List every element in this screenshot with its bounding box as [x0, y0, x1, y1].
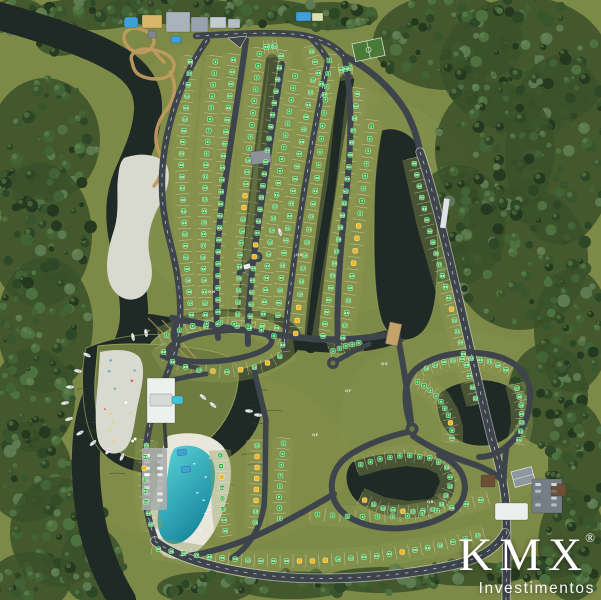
lot-marker[interactable]: 3	[279, 462, 284, 467]
lot-marker[interactable]: 25	[349, 556, 354, 561]
lot-marker[interactable]: 6	[442, 406, 447, 411]
lot-marker[interactable]: 22	[236, 300, 241, 305]
lot-marker[interactable]: 42	[287, 214, 292, 219]
lot-marker[interactable]: 32	[218, 201, 223, 206]
lot-marker[interactable]: 24	[322, 92, 327, 97]
lot-marker[interactable]: 21	[202, 289, 207, 294]
lot-marker[interactable]: 19	[504, 367, 509, 372]
lot-marker[interactable]: 2	[422, 383, 427, 388]
lot-marker[interactable]: 3	[366, 149, 371, 154]
lot-marker[interactable]: 40	[185, 266, 190, 271]
lot-marker[interactable]: 37	[279, 276, 284, 281]
lot-marker[interactable]: 5	[285, 121, 290, 126]
lot-marker[interactable]: 1	[281, 441, 286, 446]
lot-marker[interactable]: 14	[348, 286, 353, 291]
lot-marker[interactable]: 46	[181, 197, 186, 202]
lot-marker[interactable]: 21	[261, 312, 266, 317]
lot-marker[interactable]: 31	[218, 213, 223, 218]
lot-marker[interactable]: 17	[515, 386, 520, 391]
lot-marker[interactable]: 6	[390, 514, 395, 519]
lot-marker[interactable]: 35	[443, 284, 448, 289]
lot-marker[interactable]: 24	[216, 298, 221, 303]
lot-marker[interactable]: 7	[417, 454, 422, 459]
lot-marker[interactable]: 8	[259, 327, 264, 332]
lot-marker[interactable]: 62	[344, 189, 349, 194]
lot-marker[interactable]: 2	[256, 63, 261, 68]
lot-marker[interactable]: 15	[268, 240, 273, 245]
lot-marker[interactable]: 11	[277, 354, 282, 359]
lot-marker[interactable]: 1	[358, 462, 363, 467]
lot-marker[interactable]: 36	[221, 153, 226, 158]
lot-marker[interactable]: 62	[347, 66, 352, 71]
lot-marker[interactable]: 50	[259, 195, 264, 200]
lot-marker[interactable]: 21	[487, 359, 492, 364]
lot-marker[interactable]: 37	[437, 262, 442, 267]
lot-marker[interactable]: 56	[186, 82, 191, 87]
lot-marker[interactable]: 22	[316, 71, 321, 76]
lot-marker[interactable]: 38	[187, 289, 192, 294]
lot-marker[interactable]: 18	[341, 335, 346, 340]
lot-marker[interactable]: 3	[343, 344, 348, 349]
lot-marker[interactable]: 10	[203, 163, 208, 168]
lot-marker[interactable]: 15	[223, 528, 228, 533]
lot-marker[interactable]: 14	[519, 412, 524, 417]
lot-marker[interactable]: 34	[275, 313, 280, 318]
lot-marker[interactable]: 47	[255, 231, 260, 236]
lot-marker[interactable]: 9	[435, 508, 440, 513]
lot-marker[interactable]: 23	[216, 310, 221, 315]
lot-marker[interactable]: 53	[326, 297, 331, 302]
lot-marker[interactable]: 1	[164, 333, 169, 338]
lot-marker[interactable]: 11	[371, 502, 376, 507]
lot-marker[interactable]: 7	[281, 145, 286, 150]
lot-marker[interactable]: 30	[458, 340, 463, 345]
lot-marker[interactable]: 3	[428, 388, 433, 393]
lot-marker[interactable]: 38	[434, 251, 439, 256]
lot-marker[interactable]: 36	[207, 554, 212, 559]
lot-marker[interactable]: 58	[188, 59, 193, 64]
lot-marker[interactable]: 4	[210, 94, 215, 99]
lot-marker[interactable]: 17	[197, 368, 202, 373]
lot-marker[interactable]: 20	[202, 278, 207, 283]
lot-marker[interactable]: 53	[263, 160, 268, 165]
lot-marker[interactable]: 4	[253, 87, 258, 92]
lot-marker[interactable]	[254, 476, 259, 481]
lot-marker[interactable]: 48	[256, 219, 261, 224]
lot-marker[interactable]: 52	[142, 477, 147, 482]
lot-marker[interactable]: 4	[388, 455, 393, 460]
lot-marker[interactable]: 38	[224, 129, 229, 134]
lot-marker[interactable]: 12	[381, 506, 386, 511]
lot-marker[interactable]: 28	[424, 366, 429, 371]
lot-marker[interactable]: 47	[297, 152, 302, 157]
lot-marker[interactable]: 5	[322, 110, 327, 115]
lot-marker[interactable]: 20	[309, 49, 314, 54]
lot-marker[interactable]: 16	[517, 394, 522, 399]
lot-marker[interactable]: 13	[252, 365, 257, 370]
lot-marker[interactable]: 18	[183, 364, 188, 369]
lot-marker[interactable]: 10	[315, 175, 320, 180]
lot-marker[interactable]: 35	[277, 300, 282, 305]
lot-marker[interactable]: 37	[188, 301, 193, 306]
lot-marker[interactable]: 20	[161, 350, 166, 355]
lot-marker[interactable]	[295, 318, 300, 323]
lot-marker[interactable]	[142, 466, 147, 471]
lot-marker[interactable]: 48	[299, 139, 304, 144]
lot-marker[interactable]: 64	[346, 165, 351, 170]
lot-marker[interactable]: 55	[267, 136, 272, 141]
lot-marker[interactable]: 36	[440, 273, 445, 278]
lot-marker[interactable]: 15	[305, 240, 310, 245]
lot-marker[interactable]: 2	[367, 136, 372, 141]
lot-marker[interactable]: 15	[519, 403, 524, 408]
lot-marker[interactable]: 13	[221, 507, 226, 512]
lot-marker[interactable]: 47	[180, 186, 185, 191]
lot-marker[interactable]: 15	[346, 298, 351, 303]
lot-marker[interactable]: 48	[179, 174, 184, 179]
lot-marker[interactable]: 8	[218, 453, 223, 458]
lot-marker[interactable]: 46	[412, 161, 417, 166]
lot-marker[interactable]: 1	[369, 124, 374, 129]
lot-marker[interactable]: 44	[291, 189, 296, 194]
lot-marker[interactable]: 11	[313, 188, 318, 193]
lot-marker[interactable]: 33	[219, 189, 224, 194]
lot-marker[interactable]: 1	[415, 380, 420, 385]
lot-marker[interactable]: 43	[250, 278, 255, 283]
lot-marker[interactable]: 31	[271, 559, 276, 564]
lot-marker[interactable]	[255, 465, 260, 470]
lot-marker[interactable]: 61	[342, 201, 347, 206]
lot-marker[interactable]: 16	[303, 253, 308, 258]
lot-marker[interactable]: 8	[358, 211, 363, 216]
lot-marker[interactable]: 56	[268, 124, 273, 129]
lot-marker[interactable]: 57	[334, 249, 339, 254]
lot-marker[interactable]: 28	[216, 249, 221, 254]
lot-marker[interactable]: 42	[422, 206, 427, 211]
lot-marker[interactable]: 56	[332, 261, 337, 266]
lot-marker[interactable]: 44	[182, 220, 187, 225]
lot-marker[interactable]	[211, 369, 216, 374]
lot-marker[interactable]: 24	[361, 555, 366, 560]
lot-marker[interactable]: 44	[231, 58, 236, 63]
lot-marker[interactable]: 4	[287, 109, 292, 114]
lot-marker[interactable]: 67	[351, 128, 356, 133]
lot-marker[interactable]	[293, 331, 298, 336]
lot-marker[interactable]: 65	[348, 152, 353, 157]
lot-marker[interactable]: 41	[425, 218, 430, 223]
lot-marker[interactable]: 51	[323, 322, 328, 327]
lot-marker[interactable]: 49	[146, 511, 151, 516]
lot-marker[interactable]: 2	[177, 328, 182, 333]
lot-marker[interactable]: 43	[230, 70, 235, 75]
lot-marker[interactable]: 39	[431, 240, 436, 245]
lot-marker[interactable]: 1	[213, 59, 218, 64]
lot-marker[interactable]: 19	[425, 545, 430, 550]
lot-marker[interactable]: 12	[220, 496, 225, 501]
lot-marker[interactable]: 16	[240, 229, 245, 234]
lot-marker[interactable]: 52	[262, 172, 267, 177]
lot-marker[interactable]: 34	[220, 177, 225, 182]
lot-marker[interactable]: 17	[201, 243, 206, 248]
lot-marker[interactable]: 2	[291, 85, 296, 90]
lot-marker[interactable]: 8	[318, 149, 323, 154]
lot-marker[interactable]: 49	[258, 207, 263, 212]
lot-marker[interactable]: 45	[181, 209, 186, 214]
lot-marker[interactable]: 26	[216, 274, 221, 279]
lot-marker[interactable]: 3	[211, 82, 216, 87]
lot-marker[interactable]: 40	[156, 547, 161, 552]
lot-marker[interactable]	[362, 498, 367, 503]
lot-marker[interactable]: 14	[222, 518, 227, 523]
lot-marker[interactable]: 11	[245, 170, 250, 175]
lot-marker[interactable]: 61	[277, 65, 282, 70]
lot-marker[interactable]: 25	[216, 286, 221, 291]
lot-marker[interactable]: 40	[284, 238, 289, 243]
lot-marker[interactable]: 3	[378, 457, 383, 462]
lot-marker[interactable]: 26	[470, 385, 475, 390]
lot-marker[interactable]: 30	[217, 225, 222, 230]
lot-marker[interactable]: 27	[433, 363, 438, 368]
lot-marker[interactable]: 26	[441, 360, 446, 365]
lot-marker[interactable]: 11	[464, 502, 469, 507]
lot-marker[interactable]: 8	[205, 140, 210, 145]
lot-marker[interactable]: 21	[313, 60, 318, 65]
lot-marker[interactable]: 19	[170, 359, 175, 364]
lot-marker[interactable]: 9	[247, 146, 252, 151]
lot-marker[interactable]: 53	[183, 117, 188, 122]
lot-marker[interactable]: 5	[439, 399, 444, 404]
lot-marker[interactable]: 32	[258, 559, 263, 564]
lot-marker[interactable]: 17	[342, 323, 347, 328]
lot-marker[interactable]: 19	[298, 292, 303, 297]
lot-marker[interactable]: 35	[220, 556, 225, 561]
lot-marker[interactable]: 12	[244, 182, 249, 187]
lot-marker[interactable]: 37	[222, 141, 227, 146]
lot-marker[interactable]: 12	[273, 204, 278, 209]
lot-marker[interactable]: 19	[201, 266, 206, 271]
lot-marker[interactable]: 46	[295, 164, 300, 169]
lot-marker[interactable]: 28	[464, 363, 469, 368]
lot-marker[interactable]	[242, 205, 247, 210]
lot-marker[interactable]	[355, 236, 360, 241]
lot-marker[interactable]: 34	[446, 296, 451, 301]
lot-marker[interactable]: 50	[179, 151, 184, 156]
lot-marker[interactable]: 8	[277, 516, 282, 521]
lot-marker[interactable]: 4	[323, 97, 328, 102]
lot-marker[interactable]: 4	[204, 322, 209, 327]
lot-marker[interactable]	[254, 498, 259, 503]
lot-marker[interactable]: 45	[293, 176, 298, 181]
lot-marker[interactable]	[253, 243, 258, 248]
lot-marker[interactable]: 40	[226, 105, 231, 110]
lot-marker[interactable]: 66	[349, 140, 354, 145]
lot-marker[interactable]: 12	[311, 201, 316, 206]
lot-marker[interactable]: 49	[301, 127, 306, 132]
lot-marker[interactable]: 18	[201, 255, 206, 260]
lot-marker[interactable]: 40	[427, 229, 432, 234]
lot-marker[interactable]: 4	[350, 342, 355, 347]
lot-marker[interactable]: 40	[248, 314, 253, 319]
lot-marker[interactable]: 7	[246, 324, 251, 329]
lot-marker[interactable]: 60	[275, 77, 280, 82]
lot-marker[interactable]: 13	[309, 214, 314, 219]
lot-marker[interactable]: 4	[433, 393, 438, 398]
lot-marker[interactable]: 43	[419, 195, 424, 200]
lot-marker[interactable]	[252, 254, 257, 259]
lot-marker[interactable]: 18	[264, 276, 269, 281]
lot-marker[interactable]: 10	[449, 506, 454, 511]
lot-marker[interactable]: 52	[324, 309, 329, 314]
lot-marker[interactable]: 15	[202, 220, 207, 225]
lot-marker[interactable]: 39	[186, 278, 191, 283]
lot-marker[interactable]: 2	[326, 71, 331, 76]
lot-marker[interactable]: 20	[495, 363, 500, 368]
lot-marker[interactable]: 5	[375, 514, 380, 519]
lot-marker[interactable]: 11	[220, 485, 225, 490]
lot-marker[interactable]: 5	[252, 99, 257, 104]
lot-marker[interactable]: 1	[327, 58, 332, 63]
lot-marker[interactable]: 12	[203, 186, 208, 191]
lot-marker[interactable]: 53	[272, 44, 277, 49]
lot-marker[interactable]: 38	[181, 551, 186, 556]
lot-marker[interactable]	[243, 193, 248, 198]
lot-marker[interactable]: 8	[420, 511, 425, 516]
lot-marker[interactable]: 2	[330, 513, 335, 518]
lot-marker[interactable]: 19	[237, 264, 242, 269]
lot-marker[interactable]: 57	[187, 71, 192, 76]
lot-marker[interactable]: 6	[361, 186, 366, 191]
lot-marker[interactable]: 22	[387, 552, 392, 557]
lot-marker[interactable]: 54	[328, 285, 333, 290]
lot-marker[interactable]: 9	[436, 460, 441, 465]
lot-marker[interactable]: 52	[308, 90, 313, 95]
lot-marker[interactable]: 21	[236, 288, 241, 293]
lot-marker[interactable]	[238, 367, 243, 372]
lot-marker[interactable]: 3	[324, 84, 329, 89]
lot-marker[interactable]: 7	[249, 122, 254, 127]
lot-marker[interactable]: 13	[202, 197, 207, 202]
lot-marker[interactable]: 23	[319, 81, 324, 86]
lot-marker[interactable]: 33	[246, 558, 251, 563]
lot-marker[interactable]: 16	[201, 232, 206, 237]
lot-marker[interactable]: 23	[469, 356, 474, 361]
lot-marker[interactable]: 70	[355, 92, 360, 97]
lot-marker[interactable]: 54	[265, 148, 270, 153]
lot-marker[interactable]: 2	[368, 459, 373, 464]
lot-marker[interactable]: 60	[340, 213, 345, 218]
lot-marker[interactable]: 8	[248, 134, 253, 139]
lot-marker[interactable]: 26	[336, 557, 341, 562]
lot-marker[interactable]: 20	[237, 276, 242, 281]
lot-marker[interactable]: 13	[444, 493, 449, 498]
lot-marker[interactable]: 18	[439, 502, 444, 507]
lot-marker[interactable]: 52	[181, 128, 186, 133]
lot-marker[interactable]: 39	[225, 117, 230, 122]
lot-marker[interactable]: 2	[337, 346, 342, 351]
lot-marker[interactable]: 51	[306, 102, 311, 107]
lot-marker[interactable]: 50	[144, 500, 149, 505]
lot-marker[interactable]: 6	[208, 117, 213, 122]
lot-marker[interactable]: 10	[246, 158, 251, 163]
lot-marker[interactable]: 8	[279, 157, 284, 162]
lot-marker[interactable]: 6	[277, 495, 282, 500]
lot-marker[interactable]: 3	[190, 323, 195, 328]
lot-marker[interactable]	[254, 487, 259, 492]
lot-marker[interactable]: 51	[261, 183, 266, 188]
lot-marker[interactable]: 51	[180, 140, 185, 145]
lot-marker[interactable]: 13	[520, 420, 525, 425]
lot-marker[interactable]	[351, 261, 356, 266]
lot-marker[interactable]: 5	[209, 105, 214, 110]
lot-marker[interactable]: 13	[391, 507, 396, 512]
lot-marker[interactable]: 50	[321, 334, 326, 339]
lot-marker[interactable]: 4	[360, 515, 365, 520]
lot-marker[interactable]: 41	[285, 226, 290, 231]
lot-marker[interactable]: 30	[284, 559, 289, 564]
lot-marker[interactable]: 2	[280, 452, 285, 457]
lot-marker[interactable]: 7	[405, 513, 410, 518]
lot-marker[interactable]: 23	[374, 554, 379, 559]
lot-marker[interactable]	[448, 420, 453, 425]
lot-marker[interactable]: 7	[360, 199, 365, 204]
lot-marker[interactable]: 15	[241, 217, 246, 222]
lot-marker[interactable]: 50	[304, 115, 309, 120]
lot-marker[interactable]	[323, 558, 328, 563]
lot-marker[interactable]: 6	[251, 111, 256, 116]
lot-marker[interactable]: 51	[143, 489, 148, 494]
lot-marker[interactable]: 6	[232, 321, 237, 326]
lot-marker[interactable]: 12	[448, 484, 453, 489]
lot-marker[interactable]: 44	[251, 266, 256, 271]
lot-marker[interactable]: 27	[467, 374, 472, 379]
lot-marker[interactable]: 6	[407, 453, 412, 458]
lot-marker[interactable]: 6	[283, 133, 288, 138]
lot-marker[interactable]: 22	[202, 301, 207, 306]
lot-marker[interactable]: 48	[148, 522, 153, 527]
lot-marker[interactable]	[219, 475, 224, 480]
lot-marker[interactable]: 59	[274, 89, 279, 94]
lot-marker[interactable]: 13	[350, 273, 355, 278]
lot-marker[interactable]: 1	[293, 74, 298, 79]
lot-marker[interactable]: 1	[257, 52, 262, 57]
lot-marker[interactable]: 9	[219, 464, 224, 469]
lot-marker[interactable]: 18	[438, 543, 443, 548]
lot-marker[interactable]: 57	[270, 113, 275, 118]
lot-marker[interactable]: 7	[319, 136, 324, 141]
lot-marker[interactable]: 62	[279, 54, 284, 59]
lot-marker[interactable]: 55	[330, 273, 335, 278]
lot-marker[interactable]: 25	[451, 358, 456, 363]
lot-marker[interactable]	[401, 509, 406, 514]
lot-marker[interactable]: 10	[276, 180, 281, 185]
lot-marker[interactable]: 5	[397, 454, 402, 459]
lot-marker[interactable]	[255, 454, 260, 459]
lot-marker[interactable]: 15	[225, 370, 230, 375]
lot-marker[interactable]: 42	[183, 243, 188, 248]
lot-marker[interactable]: 2	[212, 71, 217, 76]
lot-marker[interactable]: 43	[182, 232, 187, 237]
lot-marker[interactable]: 42	[229, 82, 234, 87]
lot-marker[interactable]: 63	[345, 177, 350, 182]
lot-marker[interactable]: 55	[185, 94, 190, 99]
lot-marker[interactable]: 31	[455, 329, 460, 334]
lot-marker[interactable]: 14	[269, 228, 274, 233]
lot-marker[interactable]: 8	[427, 456, 432, 461]
lot-marker[interactable]	[297, 559, 302, 564]
lot-marker[interactable]: 7	[206, 128, 211, 133]
lot-marker[interactable]: 19	[263, 288, 268, 293]
lot-marker[interactable]: 7	[277, 505, 282, 510]
